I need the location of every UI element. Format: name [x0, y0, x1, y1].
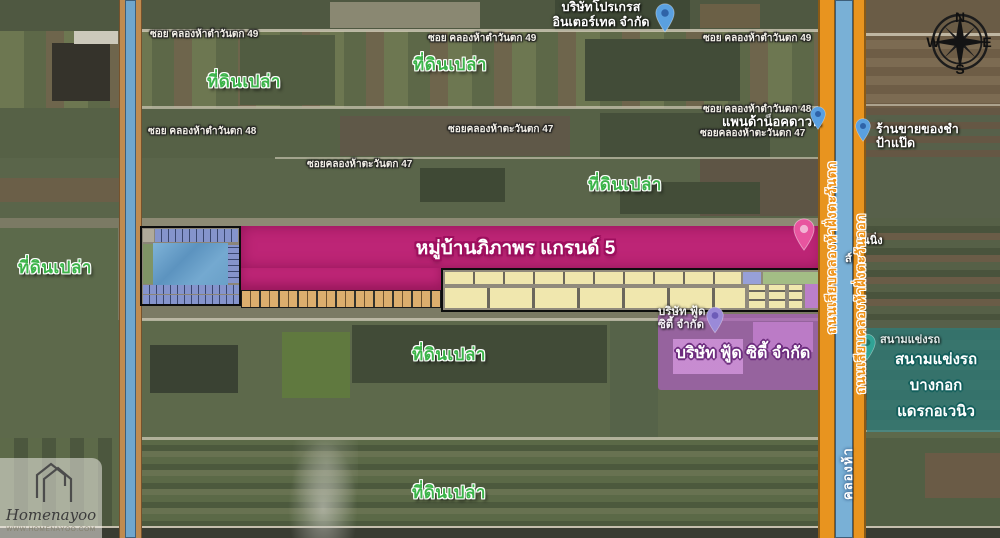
soi-49-label: ซอย คลองห้าตำวันตก 49	[428, 31, 536, 46]
smoke-plume	[288, 440, 358, 538]
compass-icon: N S E W	[926, 8, 994, 76]
pin-progress-intertech-icon	[655, 3, 675, 33]
soi-47-label: ซอยคลองห้าตะวันตก 47	[307, 157, 412, 172]
food-city-title: บริษัท ฟู้ด ซิตี้ จำกัด	[660, 341, 826, 366]
dragstrip-small-label: สนามแข่งรถ	[880, 330, 940, 348]
soi-47-label: ซอยคลองห้าตะวันตก 47	[448, 122, 553, 137]
soi-48-label: ซอย คลองห้าตำวันตก 48	[148, 124, 256, 139]
empty-land-label: ที่ดินเปล่า	[588, 171, 662, 198]
watermark-brand: Homenayoo	[0, 506, 102, 524]
panda-knockdown-label: แพนด้าน็อคดาวน์	[722, 111, 821, 132]
empty-land-label: ที่ดินเปล่า	[412, 479, 486, 506]
east-bank-road-label: ถนนเลียบคลองห้าฝั่งตะวันออก	[850, 213, 871, 394]
drag-strip-title: สนามแข่งรถ บางกอก แดรกอเวนิว	[884, 347, 988, 425]
west-bank-road-label: ถนนเลียบคลองห้าฝั่งตะวันตก	[821, 161, 842, 334]
empty-land-label: ที่ดินเปล่า	[207, 68, 281, 95]
village-highlight-area	[241, 268, 441, 290]
grocery-label: ร้านขายของชำ ป้าแป๊ด	[876, 122, 959, 150]
road-line	[130, 437, 866, 440]
soi-49-label: ซอย คลองห้าตำวันตก 49	[703, 31, 811, 46]
grocery-line2: ป้าแป๊ด	[876, 136, 959, 150]
soi-49-label: ซอย คลองห้าตำวันตก 49	[150, 27, 258, 42]
food-city-small-line1: บริษัท ฟู้ด	[658, 306, 705, 319]
compass-n-label: N	[955, 9, 965, 25]
pin-panda-knockdown-icon	[810, 106, 826, 130]
watermark: Homenayoo WWW.HOMENAYOO.COM	[0, 458, 102, 538]
drag-strip-line1: สนามแข่งรถ	[884, 347, 988, 373]
compass-w-label: W	[926, 34, 940, 50]
food-city-small-line2: ซิตี้ จำกัด	[658, 319, 705, 332]
progress-line1: บริษัทโปรเกรส	[545, 0, 657, 15]
site-plan-townhouse-row	[241, 290, 441, 308]
house-logo-icon	[25, 460, 77, 506]
site-plan-left-section	[140, 226, 241, 306]
pin-village-icon	[793, 218, 815, 251]
west-canal-water	[125, 0, 136, 538]
progress-intertech-label: บริษัทโปรเกรส อินเตอร์เทค จำกัด	[545, 0, 657, 30]
drag-strip-line3: แดรกอเวนิว	[884, 399, 988, 425]
canal-name-label: คลองห้า	[837, 447, 858, 500]
grocery-line1: ร้านขายของชำ	[876, 122, 959, 136]
compass-e-label: E	[982, 34, 991, 50]
pin-food-city-icon	[706, 306, 724, 334]
compass-s-label: S	[955, 61, 964, 76]
empty-land-label: ที่ดินเปล่า	[412, 341, 486, 368]
road-line	[866, 104, 1000, 106]
food-city-small-label: บริษัท ฟู้ด ซิตี้ จำกัด	[658, 306, 705, 332]
watermark-url: WWW.HOMENAYOO.COM	[0, 526, 102, 533]
progress-line2: อินเตอร์เทค จำกัด	[545, 15, 657, 30]
pin-grocery-icon	[855, 118, 871, 142]
map-canvas: ที่ดินเปล่า ที่ดินเปล่า ที่ดินเปล่า ที่ด…	[0, 0, 1000, 538]
village-title: หมู่บ้านภิภาพร แกรนด์ 5	[243, 233, 788, 263]
drag-strip-line2: บางกอก	[884, 373, 988, 399]
empty-land-label: ที่ดินเปล่า	[18, 254, 92, 281]
empty-land-label: ที่ดินเปล่า	[413, 51, 487, 78]
site-plan-yellow-section	[441, 268, 822, 312]
